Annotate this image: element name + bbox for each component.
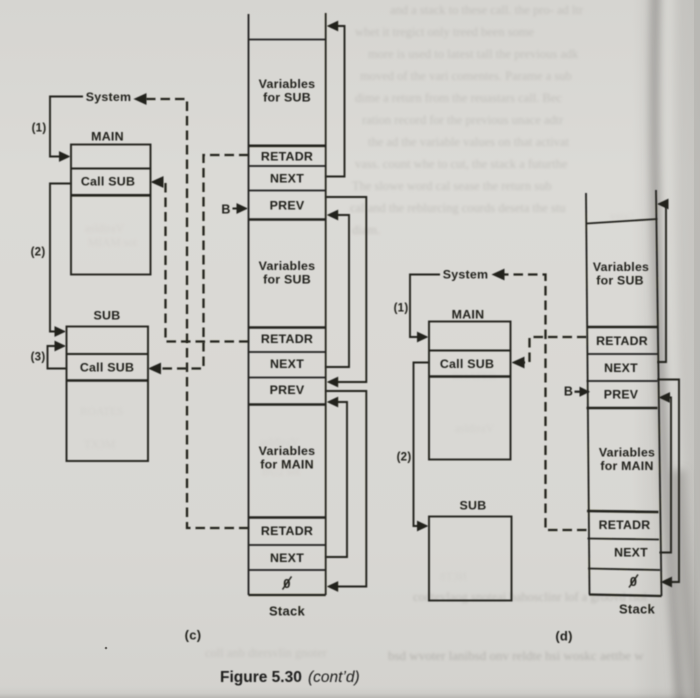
svg-text:(cont’d): (cont’d) bbox=[308, 669, 360, 686]
svg-text:(1): (1) bbox=[394, 303, 409, 315]
svg-text:TX3M: TX3M bbox=[84, 439, 115, 451]
svg-text:for SUB: for SUB bbox=[596, 274, 644, 288]
svg-text:MAIN: MAIN bbox=[452, 308, 485, 322]
svg-text:whet it tregict only treed bee: whet it tregict only treed been some bbox=[355, 25, 535, 39]
svg-text:B: B bbox=[564, 385, 573, 399]
svg-text:RETADR: RETADR bbox=[261, 524, 313, 538]
svg-text:(2): (2) bbox=[397, 452, 412, 464]
svg-text:Variables: Variables bbox=[599, 446, 655, 460]
svg-text:PREV: PREV bbox=[604, 388, 639, 402]
svg-text:Stack: Stack bbox=[269, 604, 305, 619]
svg-text:asldiraV: asldiraV bbox=[455, 423, 495, 435]
svg-text:cal and the reblurcing courds: cal and the reblurcing courds deseta the… bbox=[350, 201, 566, 215]
svg-text:Variables: Variables bbox=[259, 77, 316, 91]
svg-text:Variables: Variables bbox=[259, 444, 316, 458]
svg-text:bsd wvoter lanibsd onv reldte: bsd wvoter lanibsd onv reldte hsi woskc … bbox=[388, 648, 644, 663]
svg-text:for SUB: for SUB bbox=[263, 91, 311, 105]
svg-text:(1): (1) bbox=[32, 123, 47, 135]
svg-text:the ad the variable values on: the ad the variable values on that activ… bbox=[368, 135, 569, 149]
svg-text:RETADR: RETADR bbox=[596, 334, 648, 348]
svg-text:B: B bbox=[221, 203, 230, 217]
svg-text:Figure 5.30: Figure 5.30 bbox=[220, 669, 302, 686]
svg-text:SUB: SUB bbox=[94, 309, 121, 323]
svg-text:ROATES: ROATES bbox=[80, 406, 123, 418]
svg-text:(d): (d) bbox=[555, 629, 572, 644]
svg-text:for MAIN: for MAIN bbox=[260, 458, 314, 472]
svg-text:ration record for the previous: ration record for the previous unace adt… bbox=[362, 113, 564, 127]
svg-text:MIAM sot: MIAM sot bbox=[88, 237, 138, 249]
svg-text:The slowe word cal sease the r: The slowe word cal sease the return sub bbox=[352, 179, 552, 193]
svg-text:more is used to latest tall th: more is used to latest tall the previous… bbox=[368, 47, 579, 61]
svg-text:(3): (3) bbox=[31, 352, 46, 364]
svg-text:8ТЗИ: 8ТЗИ bbox=[440, 571, 467, 583]
svg-text:RETADR: RETADR bbox=[599, 518, 651, 532]
svg-text:MAIN: MAIN bbox=[91, 130, 124, 144]
svg-text:vass. count whe to cut, the st: vass. count whe to cut, the stack a futu… bbox=[355, 157, 568, 171]
svg-text:for SUB: for SUB bbox=[263, 273, 311, 287]
svg-text:NEXT: NEXT bbox=[270, 357, 304, 371]
svg-text:NEXT: NEXT bbox=[614, 546, 648, 560]
svg-text:Variables: Variables bbox=[593, 260, 649, 274]
svg-text:System: System bbox=[86, 90, 132, 104]
svg-text:System: System bbox=[443, 268, 489, 282]
svg-text:(c): (c) bbox=[185, 628, 202, 643]
svg-text:Variables: Variables bbox=[259, 259, 316, 273]
svg-text:NEXT: NEXT bbox=[270, 172, 304, 186]
svg-text:for MAIN: for MAIN bbox=[600, 459, 653, 473]
svg-text:Call SUB: Call SUB bbox=[80, 361, 134, 375]
svg-text:coll anb dtersvlin gnoter: coll anb dtersvlin gnoter bbox=[205, 646, 328, 660]
svg-text:PREV: PREV bbox=[270, 199, 305, 213]
svg-text:dime a return from the reuasta: dime a return from the reuastars call. B… bbox=[355, 91, 562, 105]
svg-text:Call SUB: Call SUB bbox=[81, 175, 135, 189]
svg-text:NEXT: NEXT bbox=[270, 551, 304, 565]
svg-text:PREV: PREV bbox=[270, 383, 305, 397]
svg-text:codtevlaog snoteai bahosclinr: codtevlaog snoteai bahosclinr lof a groo… bbox=[413, 590, 647, 604]
svg-text:RETADR: RETADR bbox=[261, 332, 313, 346]
svg-text:and a stack to these call. the: and a stack to these call. the pro- ad l… bbox=[390, 3, 584, 17]
svg-text:(2): (2) bbox=[31, 247, 46, 259]
svg-text:Stack: Stack bbox=[619, 602, 655, 617]
svg-text:NEXT: NEXT bbox=[604, 361, 638, 375]
svg-text:Call SUB: Call SUB bbox=[440, 357, 494, 371]
svg-text:RETADR: RETADR bbox=[261, 150, 313, 164]
svg-text:SUB: SUB bbox=[460, 499, 487, 513]
svg-text:moved of the vari comentes. Pa: moved of the vari comentes. Parame a sub bbox=[360, 69, 572, 83]
svg-text:asldiraV: asldiraV bbox=[85, 223, 125, 235]
